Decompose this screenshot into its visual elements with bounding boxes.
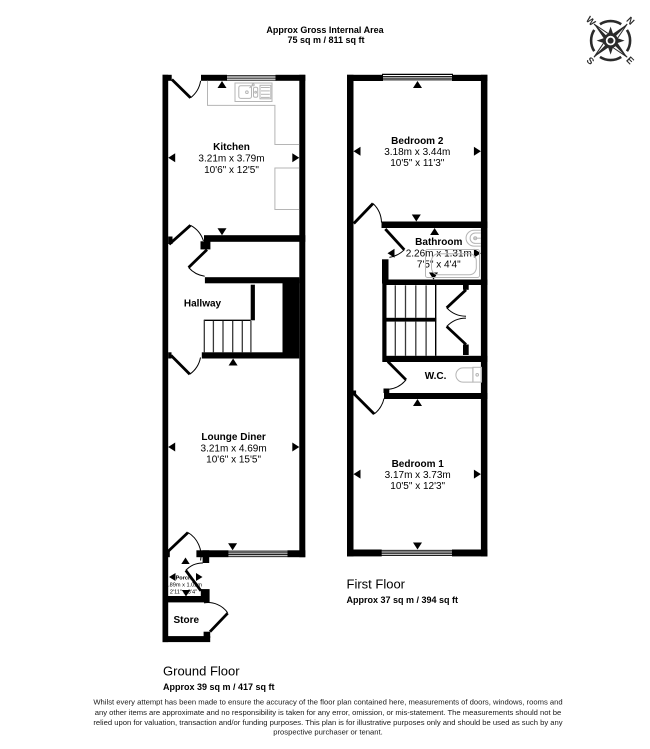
svg-text:any other items are approximat: any other items are approximate and no r… [95, 708, 562, 717]
svg-text:Store: Store [174, 615, 200, 626]
svg-text:Ground Floor: Ground Floor [163, 664, 240, 679]
svg-text:7'5" x 4'4": 7'5" x 4'4" [417, 260, 461, 271]
svg-text:First Floor: First Floor [347, 577, 406, 592]
svg-text:Lounge Diner: Lounge Diner [201, 432, 266, 443]
svg-text:Whilst every attempt has been: Whilst every attempt has been made to en… [93, 698, 562, 707]
svg-text:10'6" x 15'5": 10'6" x 15'5" [206, 454, 261, 465]
svg-text:10'5" x 12'3": 10'5" x 12'3" [390, 481, 445, 492]
svg-text:3.18m x 3.44m: 3.18m x 3.44m [384, 147, 450, 158]
svg-text:relied upon for valuation, tra: relied upon for valuation, transaction a… [93, 718, 562, 727]
svg-text:3.21m x 3.79m: 3.21m x 3.79m [198, 154, 264, 165]
svg-text:Approx 39 sq m / 417 sq ft: Approx 39 sq m / 417 sq ft [163, 682, 275, 692]
svg-text:Bedroom 2: Bedroom 2 [391, 136, 444, 147]
svg-text:W.C.: W.C. [425, 371, 447, 382]
svg-text:Bathroom: Bathroom [415, 237, 462, 248]
svg-text:10'5" x 11'3": 10'5" x 11'3" [390, 158, 445, 169]
svg-text:Bedroom 1: Bedroom 1 [392, 459, 445, 470]
svg-text:Hallway: Hallway [184, 299, 222, 310]
svg-text:Approx 37 sq m / 394 sq ft: Approx 37 sq m / 394 sq ft [347, 595, 459, 605]
svg-text:prospective purchaser or tenan: prospective purchaser or tenant. [273, 728, 383, 737]
svg-text:75 sq m / 811 sq ft: 75 sq m / 811 sq ft [287, 35, 364, 45]
svg-text:Approx Gross Internal Area: Approx Gross Internal Area [266, 25, 384, 35]
svg-text:10'6" x 12'5": 10'6" x 12'5" [204, 165, 259, 176]
svg-text:3.17m x 3.73m: 3.17m x 3.73m [385, 470, 451, 481]
svg-text:3.21m x 4.69m: 3.21m x 4.69m [201, 443, 267, 454]
svg-text:Kitchen: Kitchen [213, 142, 250, 153]
